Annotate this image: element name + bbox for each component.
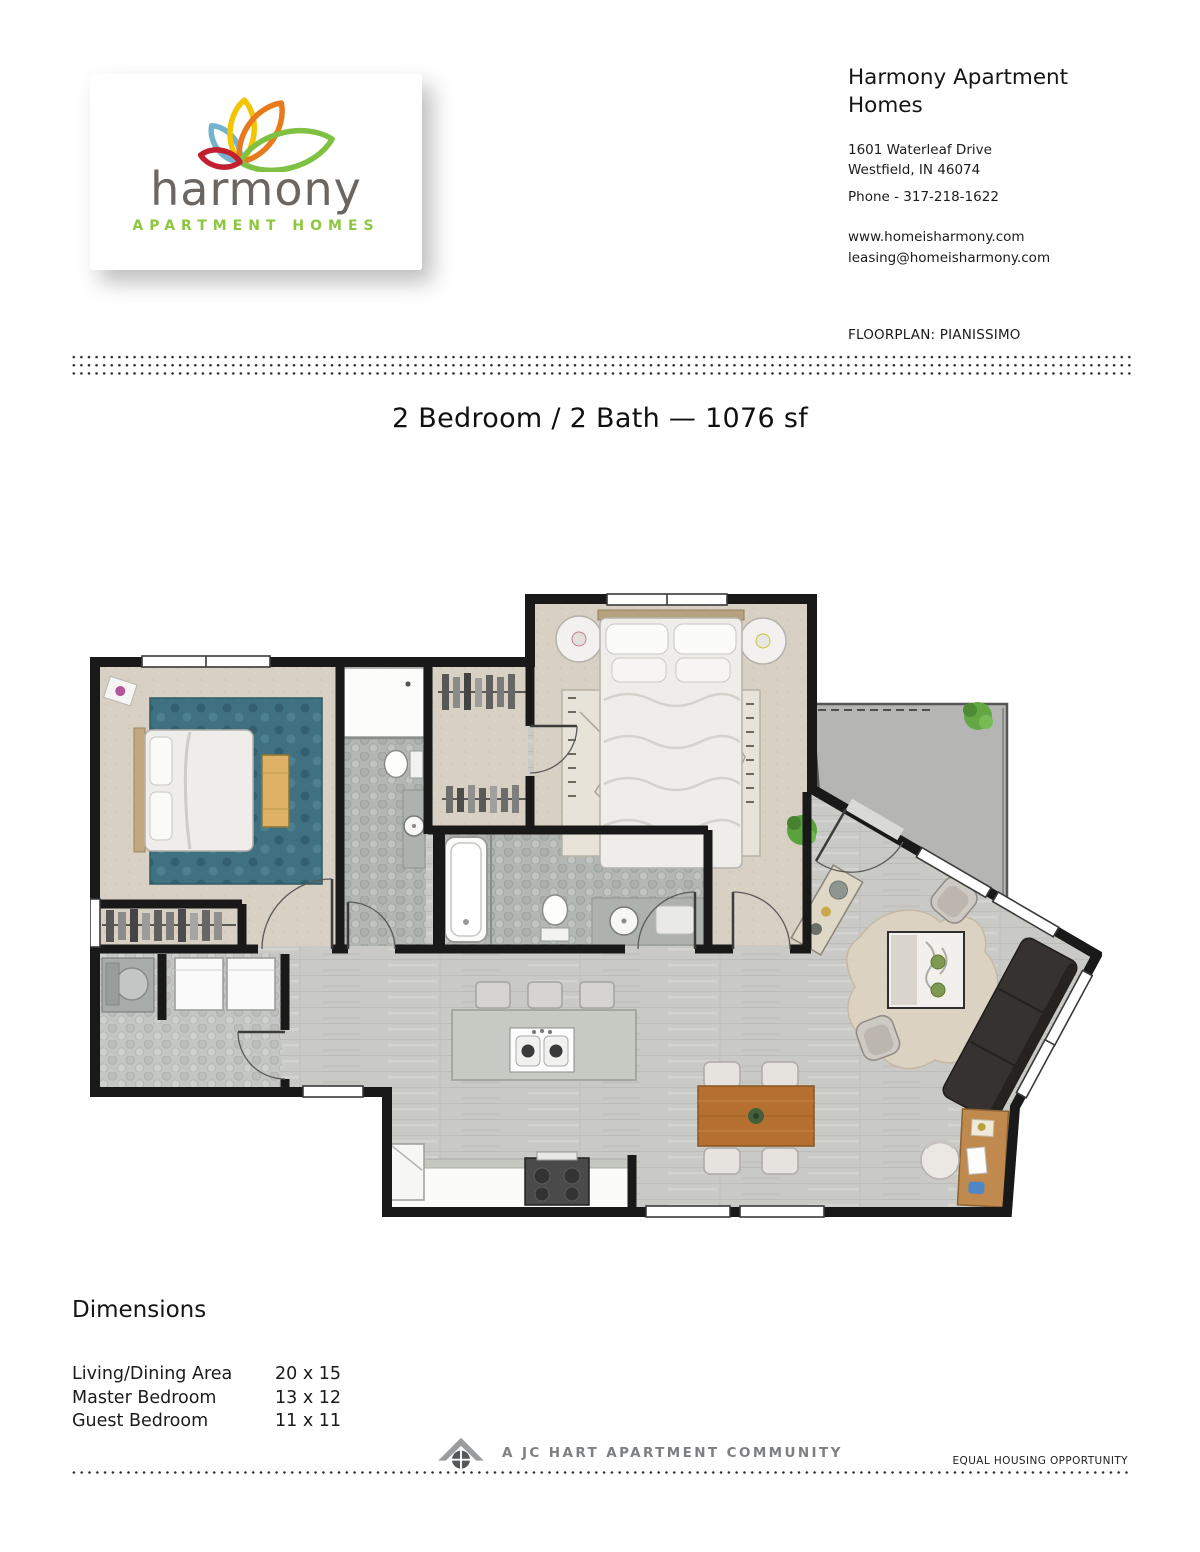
vanity-sink [403, 790, 425, 868]
vanity-sink [592, 898, 706, 945]
logo-wordmark: harmony [150, 166, 362, 212]
stove [525, 1152, 589, 1205]
dimension-row: Guest Bedroom11 x 11 [72, 1410, 341, 1434]
plan-title: 2 Bedroom / 2 Bath — 1076 sf [0, 403, 1200, 434]
dimension-row: Master Bedroom13 x 12 [72, 1387, 341, 1411]
floor-plan-drawing [90, 592, 1102, 1224]
bathtub [445, 837, 487, 942]
dimension-label: Living/Dining Area [72, 1363, 275, 1387]
harmony-flower-icon [166, 82, 346, 172]
dimensions-table: Living/Dining Area20 x 15 Master Bedroom… [72, 1363, 341, 1434]
dimension-label: Master Bedroom [72, 1387, 275, 1411]
dining-chair [762, 1148, 798, 1174]
jchart-house-icon [436, 1434, 486, 1472]
dining-chair [704, 1062, 740, 1088]
jchart-brand: A JC HART APARTMENT COMMUNITY [436, 1434, 843, 1472]
guest-closet [102, 909, 236, 942]
dimension-row: Living/Dining Area20 x 15 [72, 1363, 341, 1387]
equal-housing-label: EQUAL HOUSING OPPORTUNITY [953, 1455, 1129, 1467]
floorplan-name-label: FLOORPLAN: PIANISSIMO [848, 327, 1021, 343]
phone-number: Phone - 317-218-1622 [848, 189, 1128, 205]
dimensions-section: Dimensions Living/Dining Area20 x 15 Mas… [72, 1297, 341, 1434]
bar-stools [476, 982, 614, 1008]
washer [175, 958, 223, 1010]
bench [262, 755, 289, 827]
dining-chair [762, 1062, 798, 1088]
coffee-table [888, 932, 964, 1008]
toilet [541, 895, 569, 941]
toilet [385, 751, 424, 779]
dimension-value: 20 x 15 [275, 1364, 341, 1384]
jchart-community-label: A JC HART APARTMENT COMMUNITY [502, 1445, 843, 1461]
guest-bed-headboard [134, 728, 145, 852]
dotted-separator [70, 353, 1132, 378]
dimension-value: 11 x 11 [275, 1411, 341, 1431]
dining-chair [704, 1148, 740, 1174]
dryer [227, 958, 275, 1010]
property-name: Harmony Apartment Homes [848, 64, 1128, 120]
address-line-1: 1601 Waterleaf Drive [848, 140, 1128, 160]
logo-tagline: APARTMENT HOMES [132, 218, 379, 234]
flyer-page: harmony APARTMENT HOMES Harmony Apartmen… [0, 0, 1200, 1552]
desk [958, 1109, 1009, 1207]
shower [344, 668, 424, 737]
dimension-label: Guest Bedroom [72, 1410, 275, 1434]
water-heater [102, 958, 154, 1012]
logo-card: harmony APARTMENT HOMES [90, 74, 422, 270]
address-line-2: Westfield, IN 46074 [848, 160, 1128, 180]
kitchen-island [452, 1010, 636, 1080]
email-address: leasing@homeisharmony.com [848, 248, 1128, 269]
kitchen-counter [390, 1166, 630, 1208]
contact-block: Harmony Apartment Homes 1601 Waterleaf D… [848, 64, 1128, 269]
entry-plant [787, 815, 817, 845]
floor-plan [90, 592, 1102, 1224]
laundry-room [102, 958, 275, 1012]
dimension-value: 13 x 12 [275, 1388, 341, 1408]
dimensions-heading: Dimensions [72, 1297, 341, 1323]
website-url: www.homeisharmony.com [848, 227, 1128, 248]
refrigerator [390, 1144, 424, 1200]
dotted-footer-line [70, 1468, 1132, 1477]
